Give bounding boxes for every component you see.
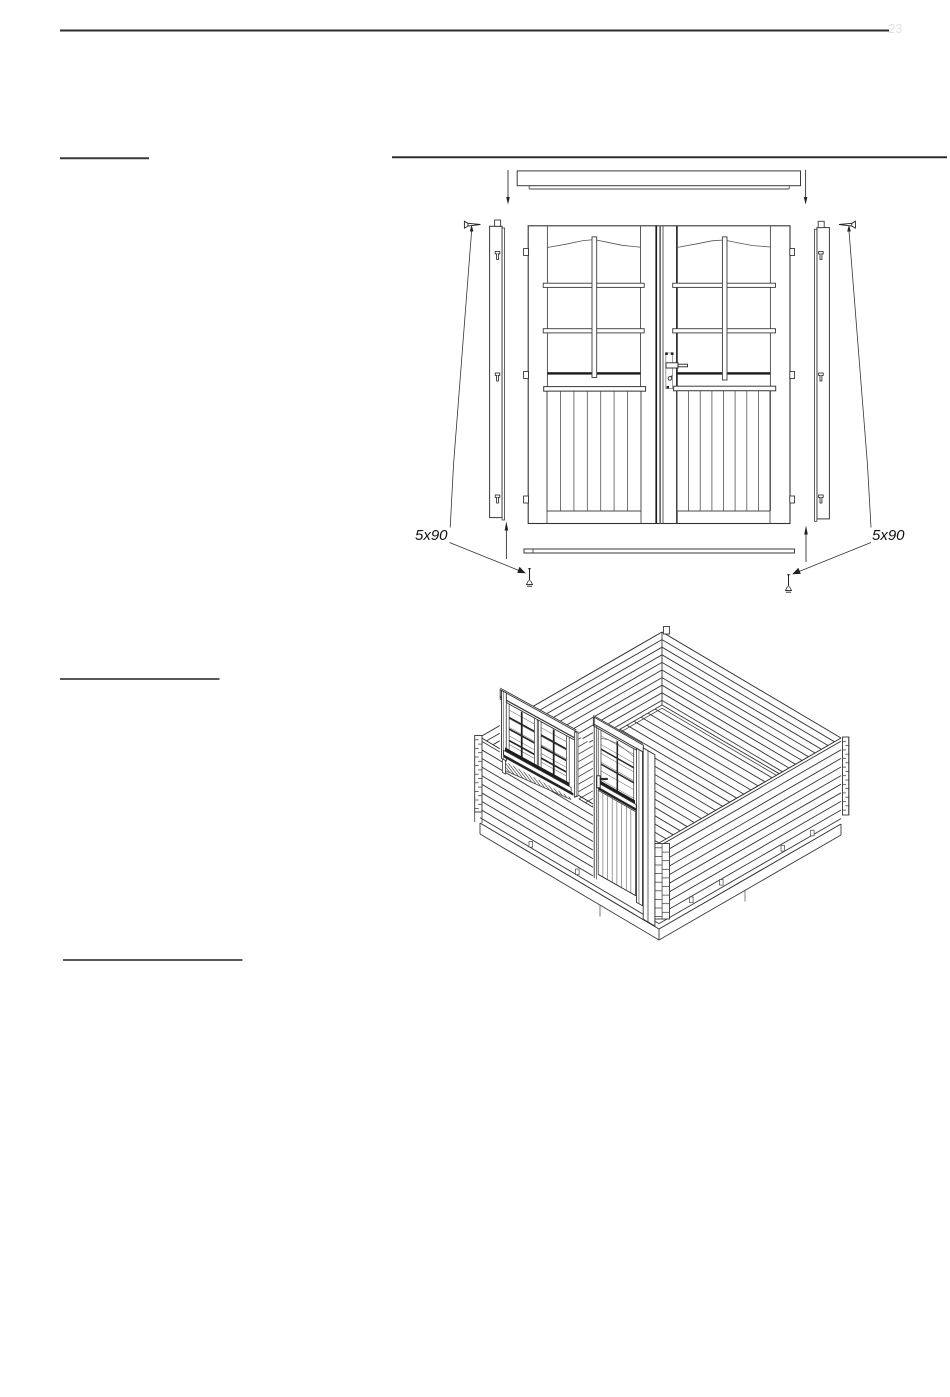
svg-text:23: 23	[888, 21, 902, 36]
svg-text:5x90: 5x90	[415, 527, 448, 544]
svg-text:5x90: 5x90	[872, 527, 905, 544]
